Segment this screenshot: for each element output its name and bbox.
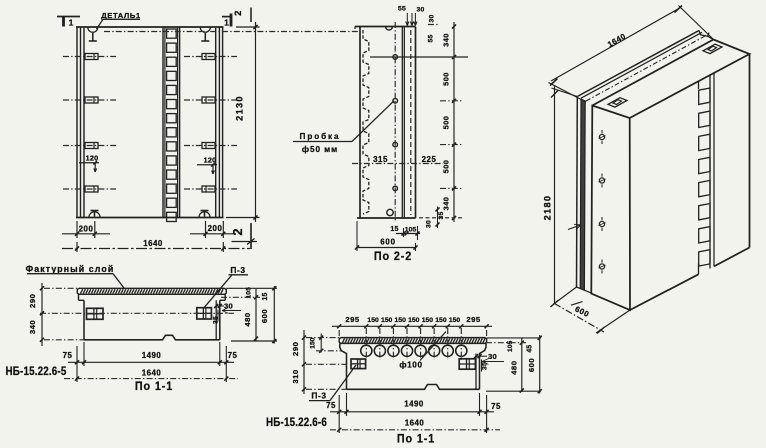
svg-text:2: 2 xyxy=(233,11,244,16)
svg-text:150: 150 xyxy=(367,317,379,324)
svg-text:1: 1 xyxy=(69,18,74,28)
svg-text:200: 200 xyxy=(208,224,223,233)
svg-text:600: 600 xyxy=(527,358,536,372)
svg-text:480: 480 xyxy=(510,361,519,375)
svg-text:Пробка: Пробка xyxy=(300,131,341,141)
svg-text:П-3: П-3 xyxy=(230,265,245,275)
svg-text:Фактурный слой: Фактурный слой xyxy=(26,264,115,274)
svg-text:600: 600 xyxy=(260,309,269,323)
svg-text:75: 75 xyxy=(228,351,238,360)
svg-text:75: 75 xyxy=(491,402,501,411)
svg-text:НБ-15.22.6-5: НБ-15.22.6-5 xyxy=(6,365,67,378)
svg-text:НБ-15.22.6-6: НБ-15.22.6-6 xyxy=(266,416,327,429)
svg-text:500: 500 xyxy=(442,116,451,130)
svg-text:75: 75 xyxy=(326,401,336,410)
svg-text:По 2-2: По 2-2 xyxy=(374,251,412,264)
svg-text:310: 310 xyxy=(291,369,300,383)
svg-text:290: 290 xyxy=(291,342,300,356)
svg-text:45: 45 xyxy=(527,345,534,353)
svg-text:500: 500 xyxy=(442,160,451,174)
svg-text:1640: 1640 xyxy=(142,368,162,377)
svg-text:340: 340 xyxy=(442,33,451,47)
svg-text:290: 290 xyxy=(28,294,37,308)
svg-text:150: 150 xyxy=(408,317,420,324)
svg-text:30: 30 xyxy=(425,220,432,228)
svg-text:315: 315 xyxy=(373,155,388,164)
svg-text:600: 600 xyxy=(380,238,396,247)
svg-text:340: 340 xyxy=(28,320,37,334)
svg-text:500: 500 xyxy=(442,72,451,86)
svg-text:480: 480 xyxy=(243,312,252,326)
svg-text:1490: 1490 xyxy=(142,351,162,360)
svg-text:105: 105 xyxy=(405,227,417,234)
svg-text:ф100: ф100 xyxy=(399,361,422,370)
svg-text:15: 15 xyxy=(390,226,398,233)
svg-text:1640: 1640 xyxy=(143,239,163,248)
svg-text:По 1-1: По 1-1 xyxy=(397,433,435,446)
svg-text:150: 150 xyxy=(310,337,317,348)
svg-text:35: 35 xyxy=(438,212,445,220)
svg-text:340: 340 xyxy=(442,197,451,211)
svg-text:30: 30 xyxy=(488,352,497,361)
svg-text:ф50 мм: ф50 мм xyxy=(302,144,338,154)
svg-text:2130: 2130 xyxy=(235,95,245,121)
svg-text:2: 2 xyxy=(231,228,245,235)
svg-text:ДЕТАЛЬ1: ДЕТАЛЬ1 xyxy=(101,11,141,20)
svg-text:55: 55 xyxy=(428,35,435,43)
svg-text:150: 150 xyxy=(381,317,393,324)
svg-text:П-3: П-3 xyxy=(311,391,326,401)
svg-text:200: 200 xyxy=(79,225,94,234)
svg-text:35: 35 xyxy=(213,316,220,324)
svg-text:По 1-1: По 1-1 xyxy=(135,381,173,394)
svg-text:295: 295 xyxy=(466,315,481,324)
svg-text:35: 35 xyxy=(482,362,489,370)
svg-text:55: 55 xyxy=(398,6,406,13)
svg-text:295: 295 xyxy=(345,315,360,324)
svg-text:150: 150 xyxy=(395,317,407,324)
svg-text:1640: 1640 xyxy=(405,419,425,428)
svg-text:30: 30 xyxy=(429,15,436,23)
svg-text:225: 225 xyxy=(422,155,437,164)
svg-text:30: 30 xyxy=(417,7,425,14)
svg-text:150: 150 xyxy=(422,317,434,324)
svg-text:75: 75 xyxy=(63,351,73,360)
svg-text:2180: 2180 xyxy=(543,195,553,221)
svg-text:1: 1 xyxy=(224,18,229,28)
svg-text:150: 150 xyxy=(435,317,447,324)
svg-text:1490: 1490 xyxy=(404,400,424,409)
svg-text:15: 15 xyxy=(262,293,269,301)
svg-text:150: 150 xyxy=(449,317,461,324)
